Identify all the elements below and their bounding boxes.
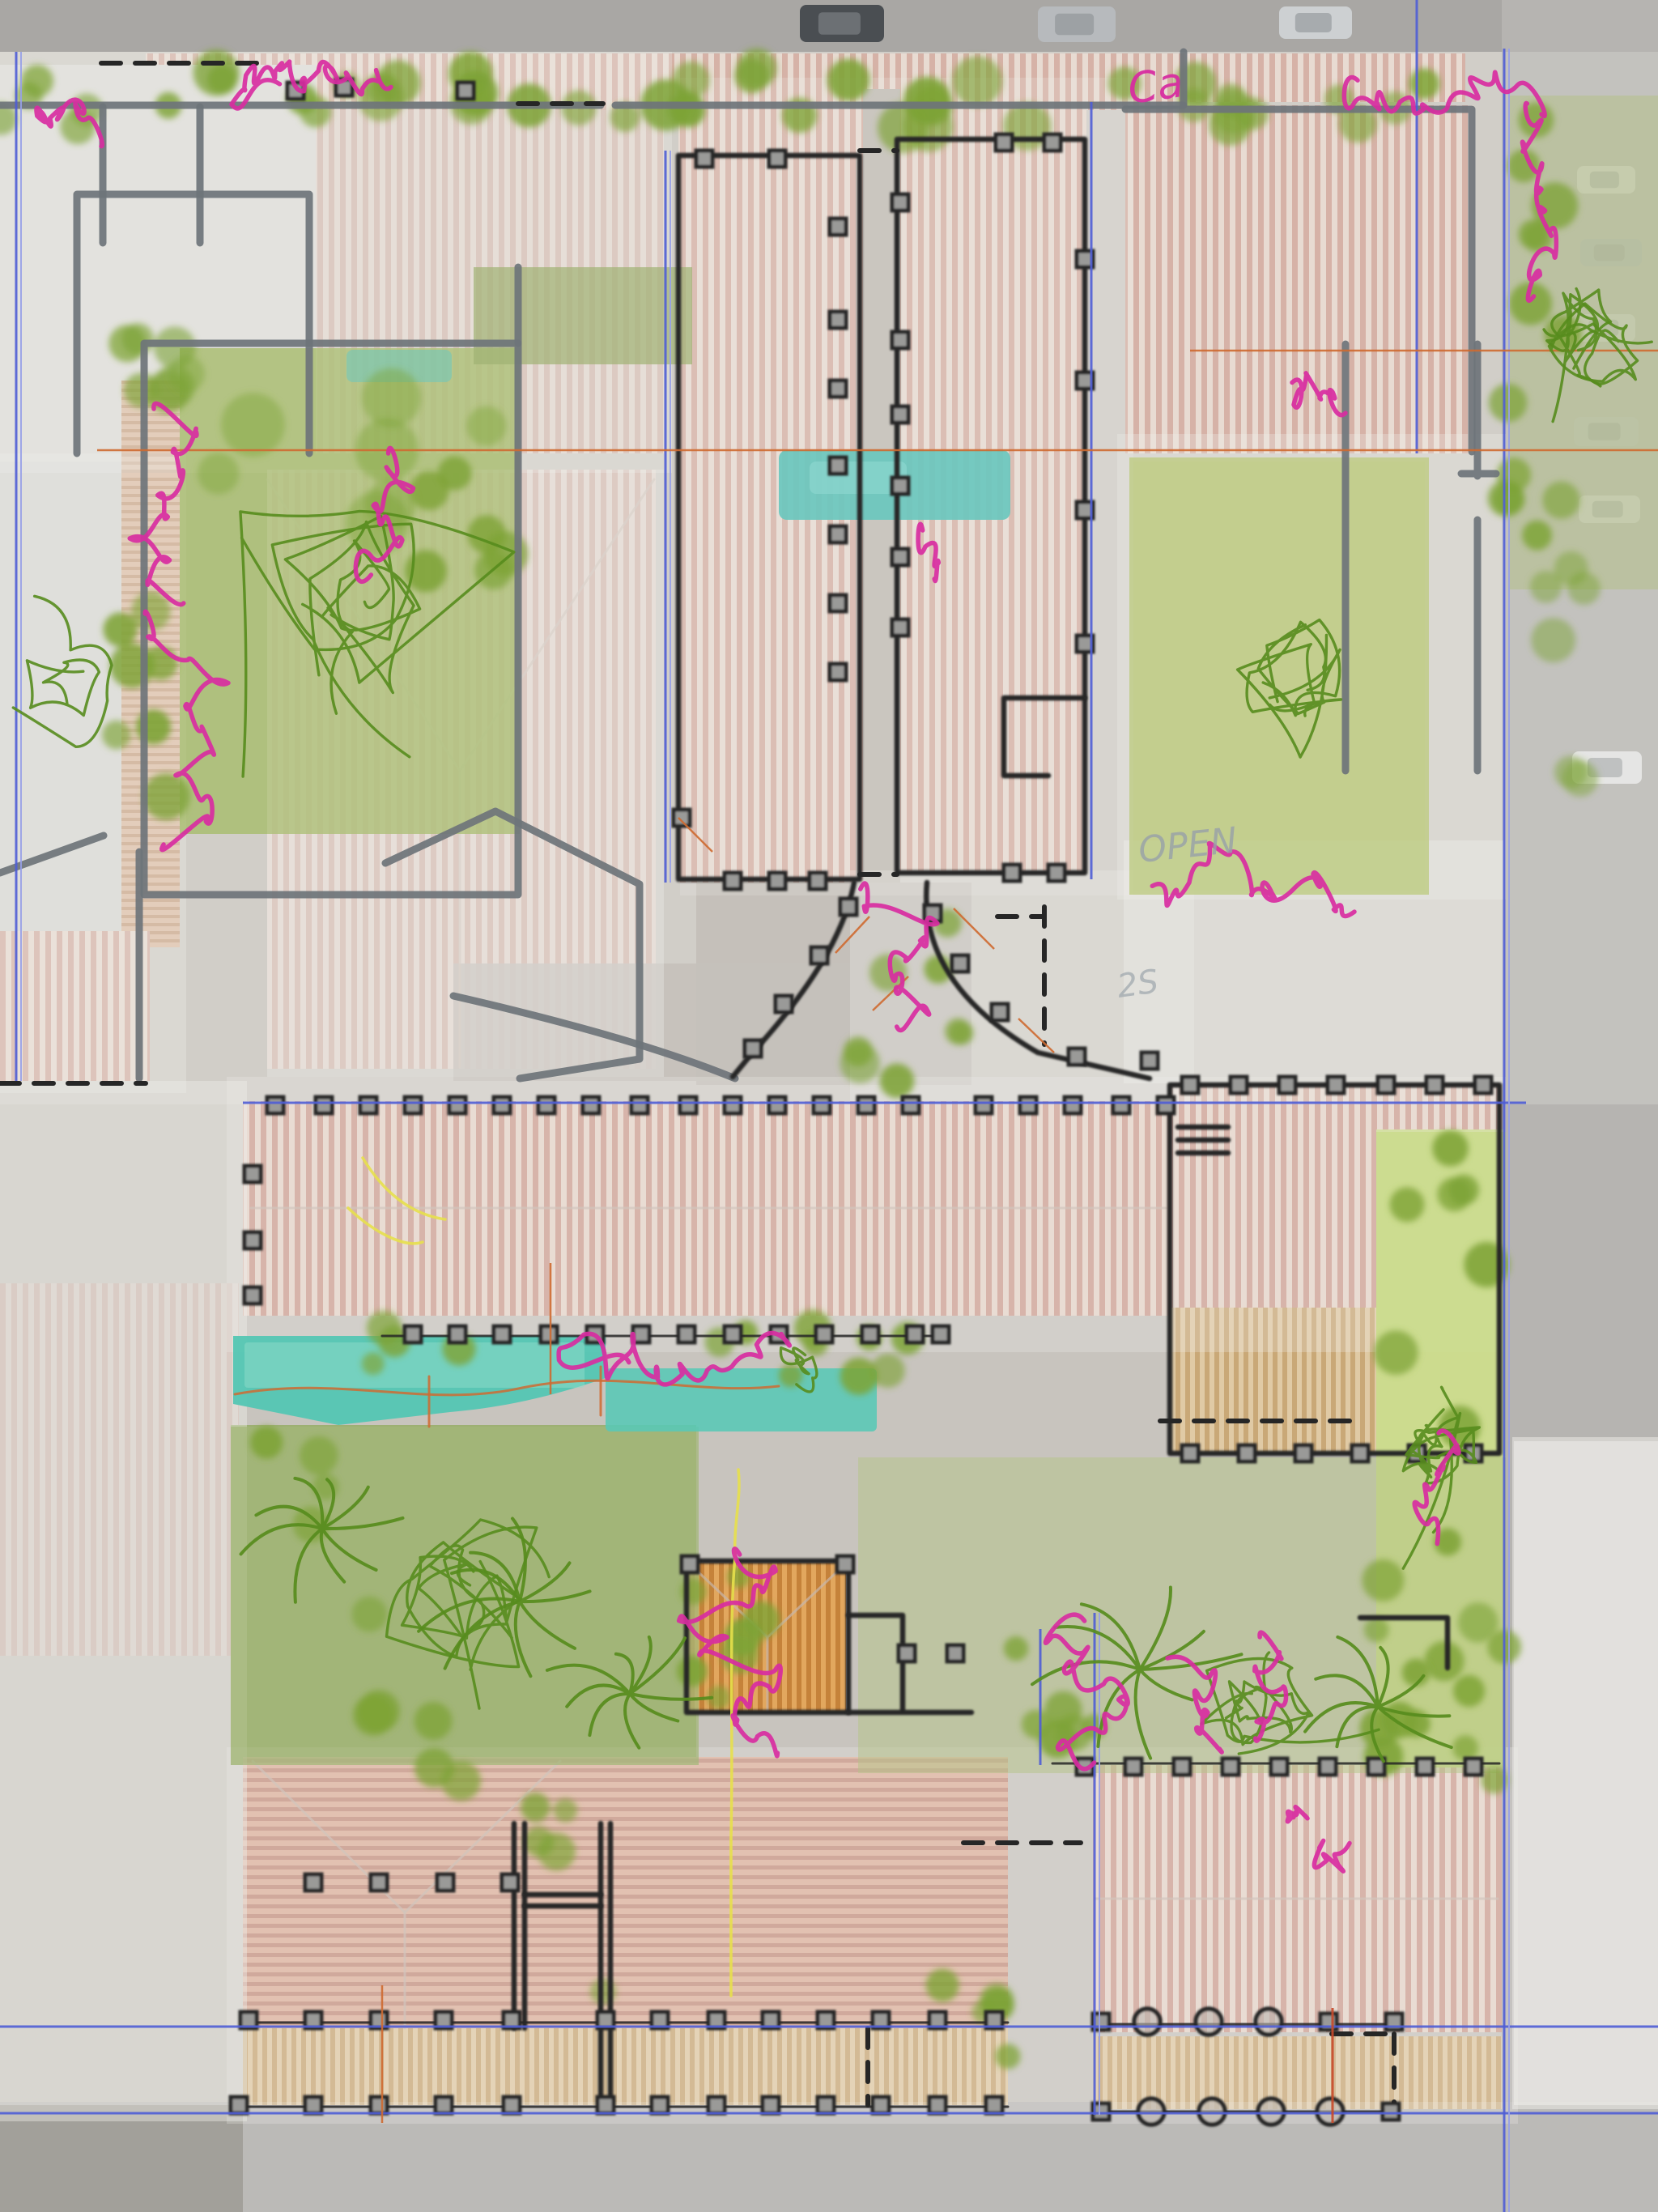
column-pier bbox=[830, 664, 846, 680]
column-pier bbox=[1182, 1445, 1198, 1461]
column-pier bbox=[816, 1326, 832, 1342]
column-pier bbox=[830, 457, 846, 474]
column-pier bbox=[947, 1645, 963, 1661]
column-pier bbox=[899, 1645, 915, 1661]
column-pier bbox=[1279, 1077, 1295, 1093]
column-pier bbox=[1231, 1077, 1247, 1093]
white-wash bbox=[0, 453, 186, 1093]
column-pier bbox=[830, 219, 846, 235]
veranda-column bbox=[1258, 2099, 1284, 2125]
column-pier bbox=[652, 2097, 668, 2113]
column-pier bbox=[1320, 1759, 1336, 1775]
column-pier bbox=[371, 2097, 387, 2113]
column-pier bbox=[892, 406, 908, 423]
column-pier bbox=[862, 1326, 878, 1342]
column-pier bbox=[1383, 2104, 1399, 2120]
pool-patch bbox=[244, 1342, 585, 1388]
column-pier bbox=[814, 1097, 830, 1113]
column-pier bbox=[810, 873, 826, 889]
column-pier bbox=[903, 1097, 919, 1113]
parked-car bbox=[800, 5, 884, 42]
column-pier bbox=[1004, 865, 1020, 881]
column-pier bbox=[267, 1097, 283, 1113]
column-pier bbox=[1239, 1445, 1255, 1461]
column-pier bbox=[1271, 1759, 1287, 1775]
column-pier bbox=[1158, 1097, 1174, 1113]
column-pier bbox=[1426, 1077, 1443, 1093]
column-pier bbox=[1417, 1759, 1433, 1775]
column-pier bbox=[892, 478, 908, 494]
white-wash bbox=[1512, 1437, 1658, 2109]
column-pier bbox=[811, 947, 827, 963]
column-pier bbox=[597, 2097, 614, 2113]
column-pier bbox=[1378, 1077, 1394, 1093]
veranda-column bbox=[1317, 2099, 1343, 2125]
column-pier bbox=[858, 1097, 874, 1113]
column-pier bbox=[680, 1097, 696, 1113]
column-pier bbox=[502, 1874, 518, 1891]
column-pier bbox=[538, 1097, 555, 1113]
column-pier bbox=[1352, 1445, 1368, 1461]
veranda-column bbox=[1134, 2009, 1160, 2035]
column-pier bbox=[1020, 1097, 1036, 1113]
column-pier bbox=[892, 619, 908, 636]
handwritten-note: Ca bbox=[1124, 58, 1186, 114]
column-pier bbox=[504, 2097, 520, 2113]
column-pier bbox=[1125, 1759, 1141, 1775]
column-pier bbox=[830, 526, 846, 542]
column-pier bbox=[541, 1326, 557, 1342]
column-pier bbox=[830, 381, 846, 397]
column-pier bbox=[1069, 1049, 1085, 1065]
column-pier bbox=[840, 899, 857, 915]
column-pier bbox=[244, 1232, 261, 1249]
column-pier bbox=[371, 1874, 387, 1891]
column-pier bbox=[830, 595, 846, 611]
column-pier bbox=[231, 2097, 247, 2113]
site-plan-sketch-canvas: CaOPEN2S bbox=[0, 0, 1658, 2212]
column-pier bbox=[457, 83, 474, 99]
column-pier bbox=[1182, 1077, 1198, 1093]
column-pier bbox=[1141, 1053, 1158, 1069]
white-wash bbox=[0, 2102, 1658, 2212]
column-pier bbox=[837, 1556, 853, 1572]
column-pier bbox=[449, 1097, 466, 1113]
column-pier bbox=[725, 873, 741, 889]
column-pier bbox=[1295, 1445, 1312, 1461]
column-pier bbox=[769, 873, 785, 889]
column-pier bbox=[631, 1097, 648, 1113]
handwritten-note: 2S bbox=[1115, 963, 1161, 1006]
column-pier bbox=[405, 1097, 421, 1113]
column-pier bbox=[708, 2097, 725, 2113]
column-pier bbox=[449, 1326, 466, 1342]
column-pier bbox=[892, 194, 908, 211]
column-pier bbox=[769, 1097, 785, 1113]
column-pier bbox=[494, 1326, 510, 1342]
column-pier bbox=[907, 1326, 923, 1342]
column-pier bbox=[769, 151, 785, 167]
veranda-column bbox=[1196, 2009, 1222, 2035]
column-pier bbox=[1048, 865, 1065, 881]
column-pier bbox=[305, 1874, 321, 1891]
column-pier bbox=[933, 1326, 949, 1342]
column-pier bbox=[1465, 1759, 1482, 1775]
garden-wash bbox=[231, 1427, 699, 1765]
column-pier bbox=[818, 2097, 834, 2113]
column-pier bbox=[674, 810, 690, 826]
column-pier bbox=[763, 2097, 779, 2113]
column-pier bbox=[316, 1097, 332, 1113]
column-pier bbox=[892, 332, 908, 348]
column-pier bbox=[1174, 1759, 1190, 1775]
veranda-column bbox=[1256, 2009, 1282, 2035]
column-pier bbox=[678, 1326, 695, 1342]
column-pier bbox=[360, 1097, 376, 1113]
column-pier bbox=[1475, 1077, 1491, 1093]
column-pier bbox=[1328, 1077, 1344, 1093]
veranda-column bbox=[1138, 2099, 1164, 2125]
column-pier bbox=[725, 1326, 741, 1342]
column-pier bbox=[244, 1166, 261, 1182]
column-pier bbox=[437, 1874, 453, 1891]
column-pier bbox=[745, 1040, 761, 1057]
parked-car bbox=[1038, 6, 1116, 42]
column-pier bbox=[830, 312, 846, 328]
column-pier bbox=[305, 2097, 321, 2113]
column-pier bbox=[1113, 1097, 1129, 1113]
parked-car bbox=[1279, 6, 1352, 39]
column-pier bbox=[405, 1326, 421, 1342]
column-pier bbox=[976, 1097, 992, 1113]
column-pier bbox=[696, 151, 712, 167]
garden-wash bbox=[474, 267, 692, 364]
column-pier bbox=[682, 1556, 698, 1572]
column-pier bbox=[929, 2097, 946, 2113]
column-pier bbox=[1044, 134, 1061, 151]
column-pier bbox=[1222, 1759, 1239, 1775]
column-pier bbox=[725, 1097, 741, 1113]
veranda-column bbox=[1199, 2099, 1225, 2125]
column-pier bbox=[892, 549, 908, 565]
column-pier bbox=[952, 955, 968, 972]
column-pier bbox=[873, 2097, 889, 2113]
column-pier bbox=[494, 1097, 510, 1113]
column-pier bbox=[583, 1097, 599, 1113]
column-pier bbox=[776, 996, 792, 1012]
column-pier bbox=[992, 1004, 1008, 1020]
column-pier bbox=[986, 2097, 1002, 2113]
column-pier bbox=[436, 2097, 452, 2113]
white-wash bbox=[0, 1081, 247, 2121]
column-pier bbox=[996, 134, 1012, 151]
white-wash bbox=[227, 1747, 1518, 2124]
pool-patch bbox=[606, 1368, 877, 1431]
column-pier bbox=[244, 1287, 261, 1304]
column-pier bbox=[1065, 1097, 1081, 1113]
